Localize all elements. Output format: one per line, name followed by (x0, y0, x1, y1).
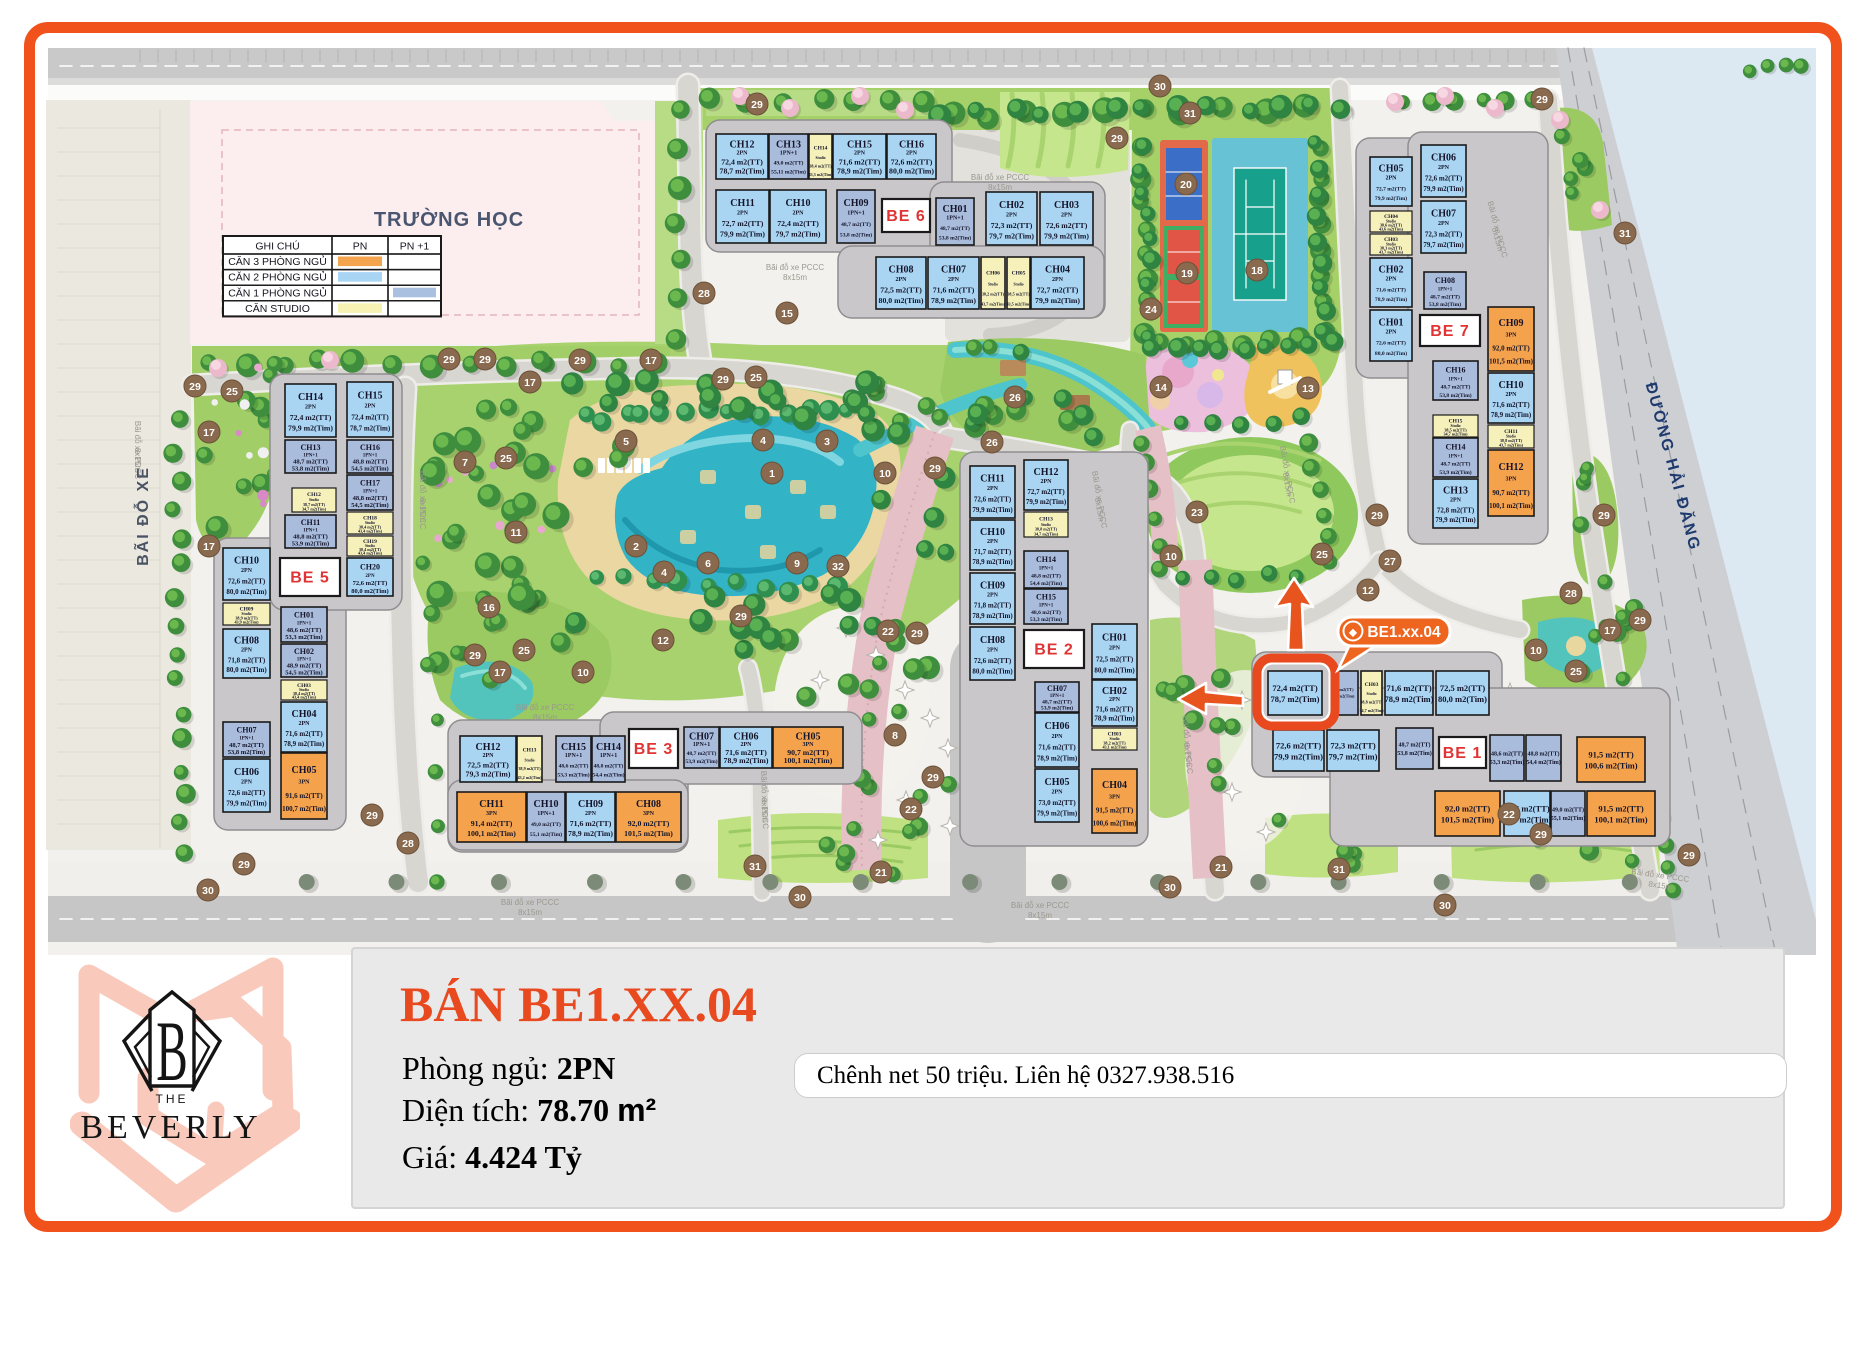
svg-text:29: 29 (1598, 510, 1610, 522)
svg-text:CH14: CH14 (596, 742, 621, 753)
svg-text:29: 29 (479, 354, 491, 366)
svg-text:79,7 m2(Tim): 79,7 m2(Tim) (1329, 751, 1378, 761)
svg-text:71,7 m2(TT): 71,7 m2(TT) (974, 548, 1012, 556)
svg-text:CH13: CH13 (301, 443, 321, 452)
svg-text:1PN+1: 1PN+1 (1448, 455, 1463, 460)
svg-text:100,1 m2(Tim): 100,1 m2(Tim) (467, 829, 516, 838)
svg-text:55,1 m2(Tim): 55,1 m2(Tim) (1551, 815, 1586, 822)
svg-text:80,0 m2(Tim): 80,0 m2(Tim) (1375, 350, 1407, 357)
svg-text:43,3 m2(Tim): 43,3 m2(Tim) (808, 172, 833, 177)
svg-text:72,7 m2(TT): 72,7 m2(TT) (1027, 488, 1065, 496)
svg-text:25: 25 (1570, 666, 1582, 678)
svg-text:CH07: CH07 (237, 726, 257, 735)
svg-text:79,3 m2(Tim): 79,3 m2(Tim) (466, 769, 511, 778)
svg-text:72,3 m2(TT): 72,3 m2(TT) (1330, 740, 1376, 750)
svg-text:53,8 m2(Tim): 53,8 m2(Tim) (1397, 750, 1432, 757)
svg-text:2PN: 2PN (365, 574, 375, 579)
svg-text:5: 5 (623, 436, 629, 448)
svg-text:78,7 m2(Tim): 78,7 m2(Tim) (1271, 694, 1320, 704)
svg-text:2PN: 2PN (483, 753, 495, 759)
svg-text:8x15m: 8x15m (783, 273, 807, 282)
svg-text:2PN: 2PN (1006, 212, 1018, 218)
svg-text:48,6 m2(TT): 48,6 m2(TT) (559, 762, 589, 769)
svg-text:CH03: CH03 (1054, 200, 1079, 211)
svg-text:54,5 m2(Tim): 54,5 m2(Tim) (351, 502, 388, 509)
svg-text:38,8 m2(TT): 38,8 m2(TT) (1360, 700, 1383, 705)
svg-text:78,9 m2(Tim): 78,9 m2(Tim) (1037, 755, 1078, 763)
svg-text:THE: THE (156, 1092, 189, 1106)
svg-text:CH16: CH16 (1446, 366, 1466, 375)
svg-text:53,3 m2(Tim): 53,3 m2(Tim) (285, 634, 322, 641)
svg-text:1PN+1: 1PN+1 (1448, 378, 1463, 383)
svg-text:29: 29 (238, 859, 250, 871)
svg-text:2PN: 2PN (1109, 645, 1121, 651)
svg-text:78,7 m2(Tim): 78,7 m2(Tim) (350, 424, 391, 432)
svg-text:CH15: CH15 (561, 742, 586, 753)
svg-text:25: 25 (500, 453, 512, 465)
svg-text:22: 22 (905, 804, 917, 816)
svg-text:8x15m: 8x15m (988, 183, 1012, 192)
svg-text:48,7 m2(TT): 48,7 m2(TT) (1042, 698, 1072, 705)
svg-text:Studio: Studio (988, 283, 998, 287)
svg-text:2PN: 2PN (987, 539, 999, 545)
svg-text:2PN: 2PN (1109, 697, 1121, 703)
svg-text:48,7 m2(TT): 48,7 m2(TT) (1441, 384, 1471, 391)
svg-text:29: 29 (1535, 829, 1547, 841)
svg-text:72,6 m2(TT): 72,6 m2(TT) (974, 495, 1012, 503)
svg-text:29: 29 (443, 354, 455, 366)
svg-text:29: 29 (927, 772, 939, 784)
svg-text:100,1 m2(Tim): 100,1 m2(Tim) (1594, 814, 1647, 824)
svg-text:CH01: CH01 (294, 611, 314, 620)
svg-text:17: 17 (494, 667, 506, 679)
svg-text:71,6 m2(TT): 71,6 m2(TT) (1386, 683, 1432, 693)
svg-text:80,0 m2(Tim): 80,0 m2(Tim) (351, 588, 388, 595)
svg-text:29: 29 (911, 628, 923, 640)
svg-text:15: 15 (781, 308, 793, 320)
svg-text:Studio: Studio (1367, 692, 1377, 696)
svg-text:2: 2 (633, 541, 639, 553)
svg-text:101,5 m2(Tim): 101,5 m2(Tim) (624, 829, 673, 838)
svg-text:48,8 m2(TT): 48,8 m2(TT) (1528, 751, 1560, 758)
svg-text:53,8 m2(Tim): 53,8 m2(Tim) (228, 749, 265, 756)
svg-text:CH20: CH20 (360, 562, 380, 571)
svg-text:78,9 m2(Tim): 78,9 m2(Tim) (724, 756, 769, 765)
svg-text:CH05: CH05 (292, 765, 317, 776)
svg-text:48,7 m2(TT): 48,7 m2(TT) (1441, 461, 1471, 468)
svg-text:22: 22 (882, 626, 894, 638)
svg-text:17: 17 (1604, 625, 1616, 637)
svg-text:29: 29 (366, 810, 378, 822)
svg-text:79,9 m2(Tim): 79,9 m2(Tim) (1026, 498, 1067, 506)
svg-text:72,4 m2(TT): 72,4 m2(TT) (1272, 683, 1318, 693)
svg-text:43,2 m2(Tim): 43,2 m2(Tim) (517, 775, 542, 780)
svg-text:29: 29 (1536, 94, 1548, 106)
svg-text:72,5 m2(TT): 72,5 m2(TT) (1440, 683, 1486, 693)
svg-text:72,5 m2(TT): 72,5 m2(TT) (467, 760, 509, 769)
svg-text:54,4 m2(Tim): 54,4 m2(Tim) (1526, 759, 1561, 766)
svg-text:48,7 m2(TT): 48,7 m2(TT) (687, 750, 717, 757)
svg-text:2PN: 2PN (1061, 212, 1073, 218)
svg-text:11: 11 (510, 527, 521, 539)
svg-text:72,3 m2(TT): 72,3 m2(TT) (991, 221, 1033, 230)
svg-text:80,0 m2(Tim): 80,0 m2(Tim) (226, 666, 267, 674)
svg-text:CH14: CH14 (298, 392, 323, 403)
svg-text:2PN: 2PN (1386, 329, 1398, 335)
svg-text:48,6 m2(TT): 48,6 m2(TT) (1031, 609, 1061, 616)
svg-text:53,9 m2(Tim): 53,9 m2(Tim) (292, 540, 329, 547)
svg-text:72,4 m2(TT): 72,4 m2(TT) (721, 158, 763, 167)
svg-text:43,6 m2(Tim): 43,6 m2(Tim) (1379, 227, 1404, 232)
svg-text:43,4 m2(Tim): 43,4 m2(Tim) (358, 528, 383, 533)
svg-text:BEVERLY: BEVERLY (80, 1109, 261, 1146)
svg-text:79,7 m2(Tim): 79,7 m2(Tim) (776, 230, 821, 239)
svg-text:1PN+1: 1PN+1 (693, 742, 710, 748)
svg-text:90,7 m2(TT): 90,7 m2(TT) (1492, 489, 1530, 497)
svg-text:72,4 m2(TT): 72,4 m2(TT) (351, 413, 389, 421)
svg-text:29: 29 (189, 381, 201, 393)
svg-text:BE1.xx.04: BE1.xx.04 (1367, 624, 1441, 641)
svg-text:48,6 m2(TT): 48,6 m2(TT) (287, 627, 322, 634)
svg-text:CH09: CH09 (844, 198, 869, 209)
svg-text:Studio: Studio (816, 156, 826, 160)
svg-text:78,9 m2(Tim): 78,9 m2(Tim) (1385, 694, 1434, 704)
svg-text:BE 5: BE 5 (290, 570, 330, 587)
svg-text:CH04: CH04 (292, 709, 317, 720)
svg-text:CH11: CH11 (730, 198, 754, 209)
svg-text:CH06: CH06 (1431, 153, 1456, 164)
svg-text:1PN+1: 1PN+1 (847, 210, 864, 216)
svg-text:2PN: 2PN (737, 151, 749, 157)
svg-text:BE 2: BE 2 (1034, 642, 1074, 659)
svg-text:78,7 m2(Tim): 78,7 m2(Tim) (720, 167, 765, 176)
svg-text:PN +1: PN +1 (400, 241, 430, 253)
svg-text:2PN: 2PN (737, 210, 749, 216)
svg-text:48,7 m2(TT): 48,7 m2(TT) (841, 221, 871, 228)
svg-text:43,9 m2(Tim): 43,9 m2(Tim) (234, 619, 259, 624)
svg-text:1PN+1: 1PN+1 (537, 811, 554, 817)
svg-text:43,7 m2(Tim): 43,7 m2(Tim) (981, 301, 1006, 306)
svg-text:CH17: CH17 (360, 479, 380, 488)
svg-text:72,5 m2(TT): 72,5 m2(TT) (1096, 655, 1134, 663)
svg-text:29: 29 (735, 611, 747, 623)
svg-text:79,9 m2(Tim): 79,9 m2(Tim) (1035, 296, 1080, 305)
svg-text:1PN+1: 1PN+1 (600, 753, 617, 759)
svg-text:CH12: CH12 (1034, 467, 1059, 478)
svg-text:CH13: CH13 (523, 748, 537, 754)
svg-text:49,0 m2(TT): 49,0 m2(TT) (531, 821, 561, 828)
svg-text:78,9 m2(Tim): 78,9 m2(Tim) (568, 829, 613, 838)
svg-text:CH15: CH15 (1036, 593, 1056, 602)
svg-text:72,5 m2(TT): 72,5 m2(TT) (880, 285, 922, 294)
svg-text:CH02: CH02 (294, 647, 314, 656)
svg-text:Studio: Studio (525, 758, 535, 762)
svg-text:1PN+1: 1PN+1 (239, 737, 254, 742)
svg-text:31: 31 (1184, 108, 1196, 120)
svg-text:12: 12 (1362, 585, 1374, 597)
svg-text:71,8 m2(TT): 71,8 m2(TT) (228, 656, 266, 664)
svg-text:92,0 m2(TT): 92,0 m2(TT) (1445, 803, 1491, 813)
svg-text:43,7 m2(Tim): 43,7 m2(Tim) (1499, 442, 1524, 447)
svg-text:17: 17 (203, 427, 215, 439)
svg-text:53,3 m2(Tim): 53,3 m2(Tim) (1030, 616, 1062, 623)
svg-text:CH10: CH10 (1499, 380, 1524, 391)
svg-text:2PN: 2PN (896, 277, 908, 283)
svg-text:2PN: 2PN (1052, 277, 1064, 283)
svg-text:CH08: CH08 (636, 799, 661, 810)
svg-text:92,0 m2(TT): 92,0 m2(TT) (1492, 345, 1530, 353)
svg-text:79,9 m2(Tim): 79,9 m2(Tim) (288, 424, 333, 433)
svg-text:80,0 m2(Tim): 80,0 m2(Tim) (879, 296, 924, 305)
svg-text:2PN: 2PN (906, 151, 918, 157)
svg-text:CH16: CH16 (360, 443, 380, 452)
svg-text:29: 29 (717, 374, 729, 386)
svg-text:23: 23 (1191, 507, 1203, 519)
svg-text:1PN+1: 1PN+1 (1438, 288, 1453, 293)
svg-text:21: 21 (1215, 862, 1227, 874)
svg-text:CH11: CH11 (980, 474, 1004, 485)
svg-text:2PN: 2PN (241, 779, 253, 785)
svg-text:CH09: CH09 (1499, 318, 1524, 329)
svg-text:79,7 m2(Tim): 79,7 m2(Tim) (1423, 241, 1464, 249)
svg-text:72,4 m2(TT): 72,4 m2(TT) (777, 219, 819, 228)
svg-text:43,4 m2(Tim): 43,4 m2(Tim) (358, 551, 383, 556)
svg-text:29: 29 (929, 463, 941, 475)
svg-text:26: 26 (1009, 392, 1021, 404)
svg-text:CĂN 2 PHÒNG NGỦ: CĂN 2 PHÒNG NGỦ (228, 271, 327, 284)
svg-text:17: 17 (645, 355, 657, 367)
svg-text:CH05: CH05 (1045, 777, 1070, 788)
svg-text:72,6 m2(TT): 72,6 m2(TT) (891, 158, 933, 167)
svg-text:78,9 m2(Tim): 78,9 m2(Tim) (1375, 296, 1407, 303)
svg-text:8x15m: 8x15m (533, 713, 557, 722)
svg-text:2PN: 2PN (1450, 498, 1462, 504)
svg-text:CĂN STUDIO: CĂN STUDIO (245, 302, 310, 315)
svg-text:BE 3: BE 3 (634, 741, 674, 758)
svg-text:CH04: CH04 (1045, 265, 1070, 276)
svg-text:32: 32 (832, 561, 844, 573)
svg-text:CH13: CH13 (1039, 517, 1053, 523)
svg-text:53,8 m2(Tim): 53,8 m2(Tim) (1429, 301, 1461, 308)
svg-text:2PN: 2PN (793, 210, 805, 216)
svg-text:6: 6 (705, 558, 711, 570)
svg-text:9: 9 (794, 558, 800, 570)
svg-text:CH14: CH14 (1036, 555, 1056, 564)
svg-text:CH12: CH12 (476, 742, 501, 753)
svg-text:CH12: CH12 (730, 140, 755, 151)
svg-text:10: 10 (1165, 551, 1177, 563)
svg-text:100,7 m2(Tim): 100,7 m2(Tim) (282, 805, 326, 813)
svg-text:2PN: 2PN (1386, 176, 1398, 182)
svg-text:43,7 m2(Tim): 43,7 m2(Tim) (1379, 250, 1404, 255)
svg-text:18: 18 (1251, 265, 1263, 277)
svg-text:CH04: CH04 (1102, 780, 1127, 791)
svg-text:78,9 m2(Tim): 78,9 m2(Tim) (931, 296, 976, 305)
svg-text:3PN: 3PN (1109, 794, 1121, 800)
svg-text:22: 22 (1503, 809, 1515, 821)
svg-text:2PN: 2PN (1052, 734, 1064, 740)
svg-text:10: 10 (577, 667, 589, 679)
svg-text:28: 28 (698, 288, 710, 300)
svg-text:1PN+1: 1PN+1 (1050, 694, 1065, 699)
svg-text:30: 30 (1439, 900, 1451, 912)
svg-text:100,1 m2(Tim): 100,1 m2(Tim) (1489, 502, 1533, 510)
svg-text:BE 6: BE 6 (886, 208, 926, 225)
svg-text:38,2 m2(TT): 38,2 m2(TT) (982, 291, 1005, 296)
svg-text:CH08: CH08 (980, 635, 1005, 646)
svg-text:Studio: Studio (1014, 283, 1024, 287)
svg-text:Bãi đỗ xe PCCC: Bãi đỗ xe PCCC (1011, 901, 1069, 910)
svg-text:48,7 m2(TT): 48,7 m2(TT) (1399, 741, 1431, 748)
svg-text:79,9 m2(Tim): 79,9 m2(Tim) (1037, 810, 1078, 818)
svg-text:1PN+1: 1PN+1 (565, 753, 582, 759)
svg-text:31: 31 (749, 861, 761, 873)
svg-text:2PN: 2PN (987, 647, 999, 653)
svg-text:53,3 m2(Tim): 53,3 m2(Tim) (1490, 759, 1525, 766)
svg-text:34,7 m2(Tim): 34,7 m2(Tim) (1359, 708, 1384, 713)
svg-text:3: 3 (824, 436, 830, 448)
svg-text:CH02: CH02 (1102, 686, 1127, 697)
svg-text:GHI CHÚ: GHI CHÚ (255, 240, 299, 253)
svg-text:53,9 m2(Tim): 53,9 m2(Tim) (685, 758, 717, 765)
svg-text:CH07: CH07 (1431, 209, 1456, 220)
svg-text:53,8 m2(Tim): 53,8 m2(Tim) (1439, 392, 1471, 399)
svg-text:CH08: CH08 (234, 636, 259, 647)
svg-text:43,5 m2(Tim): 43,5 m2(Tim) (1006, 301, 1031, 306)
svg-text:92,0 m2(TT): 92,0 m2(TT) (628, 819, 670, 828)
svg-text:79,9 m2(Tim): 79,9 m2(Tim) (1423, 185, 1464, 193)
svg-text:80,0 m2(Tim): 80,0 m2(Tim) (889, 167, 934, 176)
svg-text:71,6 m2(TT): 71,6 m2(TT) (1096, 705, 1134, 713)
svg-text:2PN: 2PN (365, 403, 377, 409)
svg-text:8x15m: 8x15m (418, 498, 427, 522)
svg-text:71,6 m2(TT): 71,6 m2(TT) (1376, 286, 1406, 293)
svg-text:CH06: CH06 (1045, 721, 1070, 732)
svg-text:CH07: CH07 (941, 265, 966, 276)
svg-text:17: 17 (203, 541, 215, 553)
svg-text:71,6 m2(TT): 71,6 m2(TT) (570, 819, 612, 828)
svg-text:55,1 m2(Tim): 55,1 m2(Tim) (530, 831, 562, 838)
svg-text:43,4 m2(Tim): 43,4 m2(Tim) (292, 695, 317, 700)
svg-text:71,6 m2(TT): 71,6 m2(TT) (839, 158, 881, 167)
svg-text:72,4 m2(TT): 72,4 m2(TT) (290, 413, 332, 422)
svg-text:29: 29 (469, 650, 481, 662)
svg-text:CH03: CH03 (1365, 682, 1379, 688)
svg-text:CH05: CH05 (1012, 271, 1026, 277)
svg-text:2PN: 2PN (299, 721, 311, 727)
svg-text:4: 4 (661, 567, 667, 579)
svg-text:48,6 m2(TT): 48,6 m2(TT) (1491, 751, 1523, 758)
svg-text:100,6 m2(Tim): 100,6 m2(Tim) (1093, 819, 1137, 827)
svg-text:53,9 m2(Tim): 53,9 m2(Tim) (1439, 469, 1471, 476)
svg-text:PN: PN (353, 241, 368, 253)
svg-text:80,0 m2(Tim): 80,0 m2(Tim) (972, 668, 1013, 676)
svg-text:30: 30 (202, 885, 214, 897)
svg-text:73,0 m2(TT): 73,0 m2(TT) (1038, 799, 1076, 807)
svg-text:78,9 m2(Tim): 78,9 m2(Tim) (1094, 714, 1135, 722)
svg-text:79,9 m2(Tim): 79,9 m2(Tim) (972, 506, 1013, 514)
svg-text:53,9 m2(Tim): 53,9 m2(Tim) (1041, 705, 1073, 712)
svg-text:71,6 m2(TT): 71,6 m2(TT) (1492, 401, 1530, 409)
svg-text:71,6 m2(TT): 71,6 m2(TT) (285, 730, 323, 738)
svg-text:38,4 m2(TT): 38,4 m2(TT) (809, 163, 832, 168)
svg-text:CH11: CH11 (479, 799, 503, 810)
svg-text:79,9 m2(Tim): 79,9 m2(Tim) (1274, 751, 1323, 761)
svg-text:91,4 m2(TT): 91,4 m2(TT) (471, 819, 513, 828)
svg-text:91,5 m2(TT): 91,5 m2(TT) (1588, 749, 1634, 759)
svg-text:79,9 m2(Tim): 79,9 m2(Tim) (1375, 195, 1407, 202)
svg-text:BÃI ĐỖ XE: BÃI ĐỖ XE (132, 466, 152, 566)
svg-text:10: 10 (879, 468, 891, 480)
svg-text:2PN: 2PN (241, 648, 253, 654)
svg-text:7: 7 (462, 457, 468, 469)
svg-text:8x15m: 8x15m (518, 908, 542, 917)
svg-text:48,8 m2(TT): 48,8 m2(TT) (353, 495, 388, 502)
svg-text:79,9 m2(Tim): 79,9 m2(Tim) (720, 230, 765, 239)
svg-text:71,8 m2(TT): 71,8 m2(TT) (974, 602, 1012, 610)
svg-text:38,5 m2(TT): 38,5 m2(TT) (1007, 291, 1030, 296)
svg-text:30: 30 (1154, 81, 1166, 93)
svg-text:1: 1 (769, 468, 775, 480)
svg-text:CH10: CH10 (234, 556, 259, 567)
svg-text:26: 26 (986, 437, 998, 449)
svg-text:48,7 m2(TT): 48,7 m2(TT) (940, 225, 970, 232)
svg-text:79,9 m2(Tim): 79,9 m2(Tim) (1044, 232, 1089, 241)
svg-text:4: 4 (760, 435, 766, 447)
svg-text:34,7 m2(Tim): 34,7 m2(Tim) (1443, 431, 1468, 436)
svg-text:10: 10 (1530, 645, 1542, 657)
svg-text:CH08: CH08 (1435, 276, 1455, 285)
svg-text:30: 30 (794, 892, 806, 904)
svg-text:54,5 m2(Tim): 54,5 m2(Tim) (351, 465, 388, 472)
svg-text:78,9 m2(Tim): 78,9 m2(Tim) (972, 612, 1013, 620)
svg-text:80,0 m2(Tim): 80,0 m2(Tim) (1094, 666, 1135, 674)
svg-text:28: 28 (1565, 588, 1577, 600)
svg-text:Bãi đỗ xe PCCC: Bãi đỗ xe PCCC (971, 173, 1029, 182)
svg-text:8x15m: 8x15m (760, 798, 770, 823)
svg-text:CH01: CH01 (943, 204, 968, 215)
svg-text:2PN: 2PN (987, 486, 999, 492)
svg-text:53,8 m2(Tim): 53,8 m2(Tim) (939, 234, 971, 241)
svg-text:CH16: CH16 (899, 140, 924, 151)
svg-text:8: 8 (892, 730, 898, 742)
svg-text:72,6 m2(TT): 72,6 m2(TT) (1046, 221, 1088, 230)
svg-text:CH01: CH01 (1102, 633, 1127, 644)
svg-text:2PN: 2PN (1052, 789, 1064, 795)
svg-text:1PN+1: 1PN+1 (780, 151, 797, 157)
svg-text:54,4 m2(Tim): 54,4 m2(Tim) (592, 771, 624, 778)
svg-text:91,5 m2(TT): 91,5 m2(TT) (1096, 807, 1134, 815)
svg-text:91,6 m2(TT): 91,6 m2(TT) (285, 792, 323, 800)
svg-text:CH12: CH12 (1499, 462, 1524, 473)
svg-text:2PN: 2PN (948, 277, 960, 283)
svg-text:CH10: CH10 (534, 799, 559, 810)
svg-text:◆: ◆ (1348, 628, 1357, 639)
svg-text:31: 31 (1333, 864, 1345, 876)
svg-text:31: 31 (1619, 228, 1631, 240)
svg-text:TRƯỜNG HỌC: TRƯỜNG HỌC (374, 207, 524, 231)
svg-text:29: 29 (1634, 615, 1646, 627)
svg-text:2PN: 2PN (241, 568, 253, 574)
svg-text:CĂN 1 PHÒNG NGỦ: CĂN 1 PHÒNG NGỦ (228, 286, 327, 299)
svg-text:8x15m: 8x15m (1028, 911, 1052, 920)
svg-text:48,8 m2(TT): 48,8 m2(TT) (594, 762, 624, 769)
svg-text:CH01: CH01 (1379, 317, 1404, 328)
svg-text:25: 25 (750, 372, 762, 384)
svg-text:2PN: 2PN (1386, 277, 1398, 283)
svg-text:12: 12 (657, 635, 669, 647)
svg-text:25: 25 (518, 645, 530, 657)
